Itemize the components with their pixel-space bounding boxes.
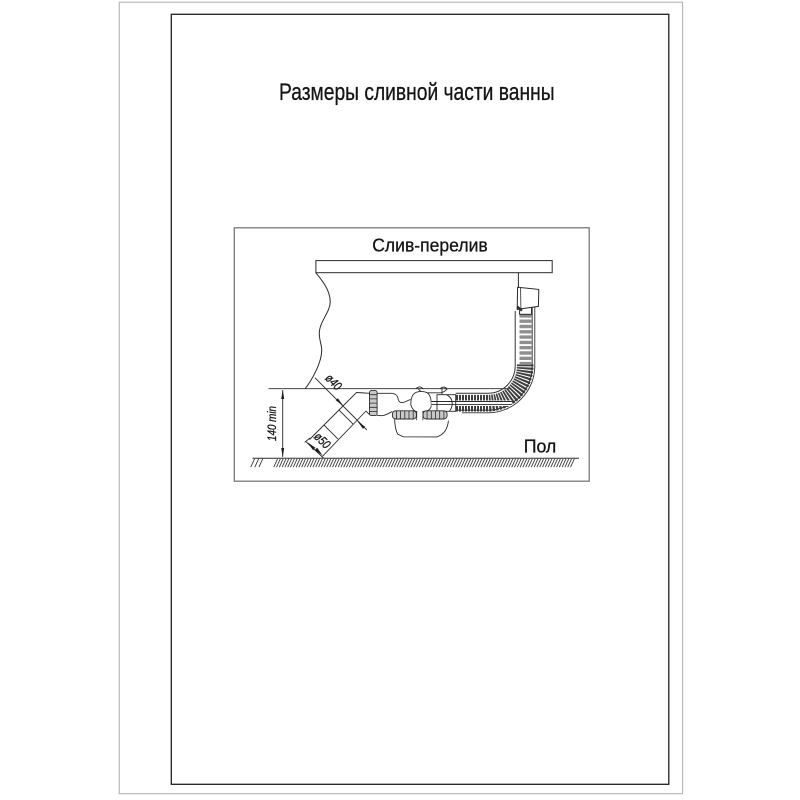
svg-text:Размеры сливной части ванны: Размеры сливной части ванны [279, 79, 555, 106]
svg-text:140 min: 140 min [266, 406, 279, 441]
svg-text:Пол: Пол [524, 436, 557, 457]
svg-text:Слив-перелив: Слив-перелив [372, 236, 488, 256]
svg-text:ø40: ø40 [322, 372, 344, 394]
